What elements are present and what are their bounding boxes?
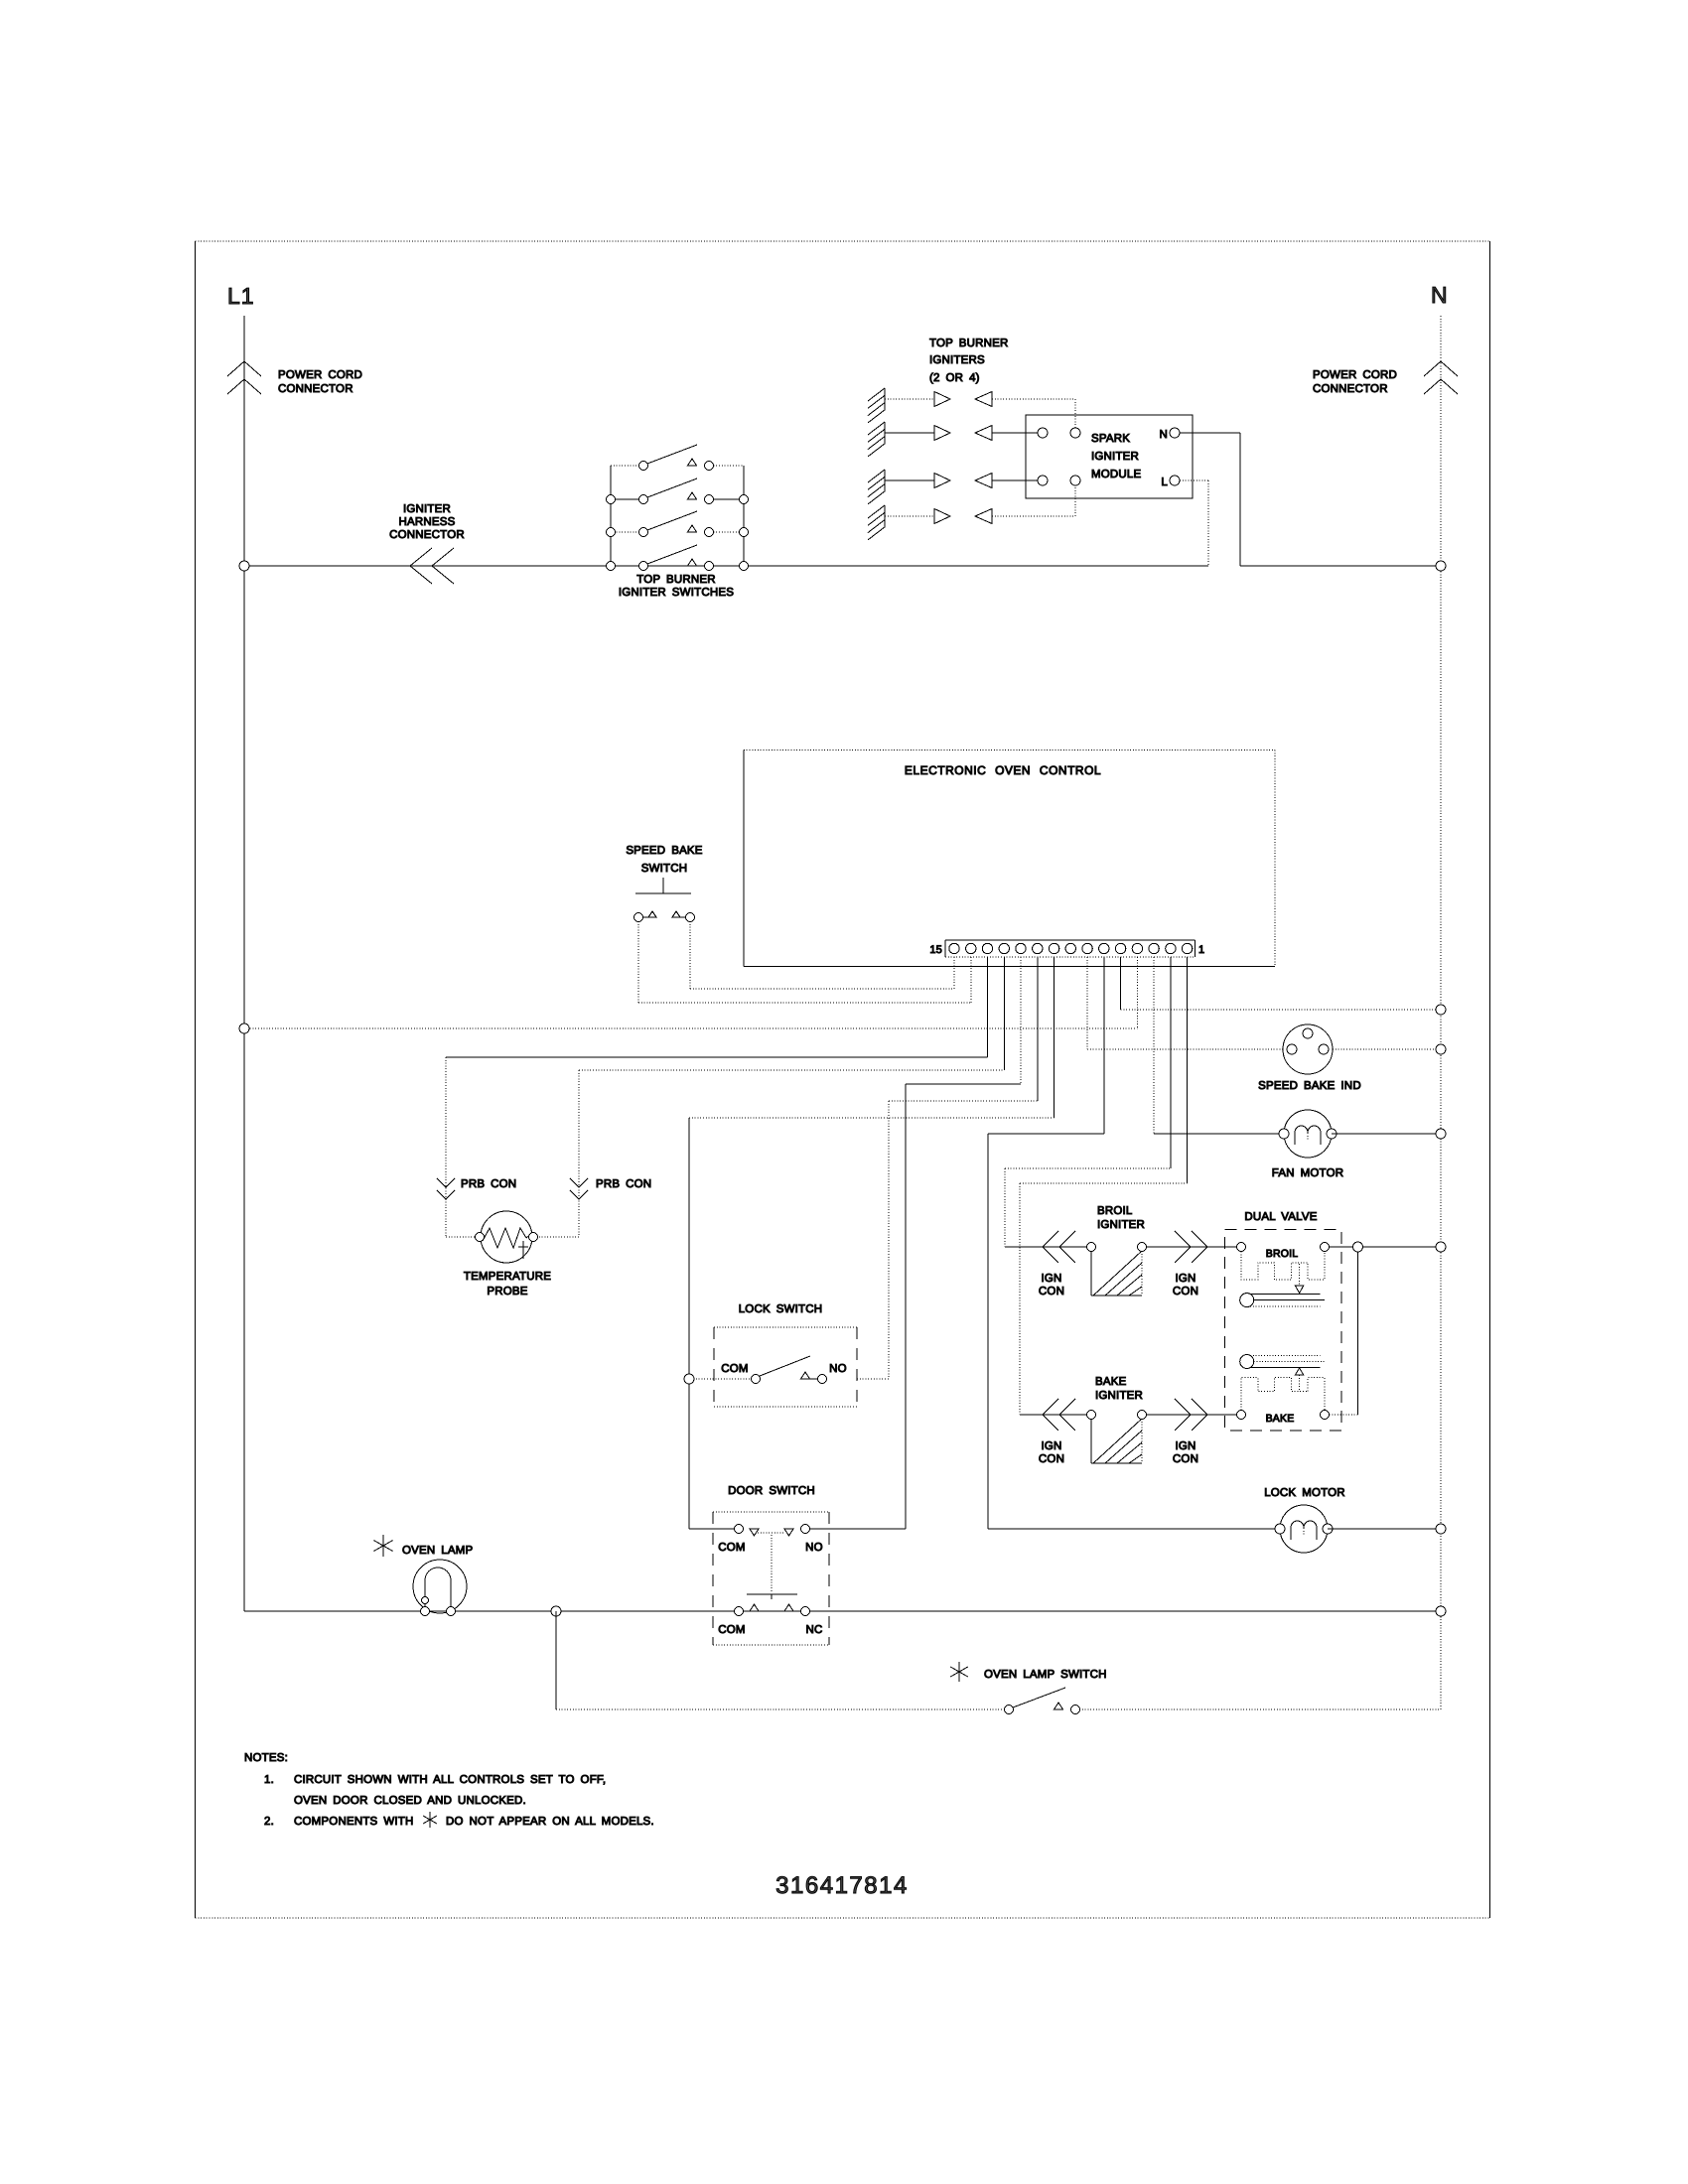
svg-text:COM: COM <box>721 1363 748 1375</box>
svg-text:SPEED BAKE IND: SPEED BAKE IND <box>1258 1080 1361 1092</box>
svg-text:OVEN LAMP SWITCH: OVEN LAMP SWITCH <box>984 1669 1107 1681</box>
svg-text:IGN: IGN <box>1175 1273 1196 1285</box>
svg-text:TOP BURNER: TOP BURNER <box>636 574 715 586</box>
svg-text:CONNECTOR: CONNECTOR <box>1313 383 1388 395</box>
svg-text:CONNECTOR: CONNECTOR <box>389 529 465 541</box>
svg-text:IGNITERS: IGNITERS <box>929 354 985 366</box>
svg-text:POWER CORD: POWER CORD <box>1313 369 1397 381</box>
svg-text:NO: NO <box>829 1363 847 1375</box>
svg-text:IGN: IGN <box>1041 1440 1061 1452</box>
svg-text:1.: 1. <box>264 1774 274 1786</box>
svg-text:SPARK: SPARK <box>1091 433 1130 445</box>
svg-text:(2 OR 4): (2 OR 4) <box>929 372 980 384</box>
svg-text:N: N <box>1159 429 1168 441</box>
svg-text:OVEN DOOR CLOSED AND UNLOCKED.: OVEN DOOR CLOSED AND UNLOCKED. <box>294 1795 526 1807</box>
svg-text:PROBE: PROBE <box>487 1286 527 1297</box>
svg-text:POWER CORD: POWER CORD <box>278 369 362 381</box>
svg-text:COMPONENTS WITH: COMPONENTS WITH <box>294 1816 414 1828</box>
svg-text:CIRCUIT SHOWN WITH ALL CONTROL: CIRCUIT SHOWN WITH ALL CONTROLS SET TO O… <box>294 1774 606 1786</box>
svg-text:NO: NO <box>805 1542 823 1554</box>
svg-text:IGNITER: IGNITER <box>1091 451 1139 463</box>
svg-text:2.: 2. <box>264 1816 274 1828</box>
svg-text:DOOR SWITCH: DOOR SWITCH <box>728 1485 815 1497</box>
svg-text:COM: COM <box>718 1624 745 1636</box>
svg-text:DUAL VALVE: DUAL VALVE <box>1244 1211 1317 1223</box>
svg-text:SPEED BAKE: SPEED BAKE <box>626 845 702 857</box>
svg-text:IGNITER: IGNITER <box>1095 1390 1143 1402</box>
svg-text:L: L <box>1161 477 1168 488</box>
svg-text:BAKE: BAKE <box>1266 1413 1295 1425</box>
svg-text:LOCK SWITCH: LOCK SWITCH <box>739 1303 823 1315</box>
svg-text:TOP BURNER: TOP BURNER <box>929 338 1008 349</box>
svg-text:NOTES:: NOTES: <box>244 1752 288 1764</box>
svg-text:L1: L1 <box>227 283 255 309</box>
svg-text:HARNESS: HARNESS <box>399 516 456 528</box>
svg-text:IGNITER: IGNITER <box>1097 1219 1145 1231</box>
svg-text:ELECTRONIC OVEN CONTROL: ELECTRONIC OVEN CONTROL <box>905 763 1101 777</box>
svg-text:OVEN LAMP: OVEN LAMP <box>402 1545 474 1557</box>
svg-text:IGNITER: IGNITER <box>403 503 451 515</box>
svg-text:LOCK MOTOR: LOCK MOTOR <box>1264 1487 1345 1499</box>
svg-text:TEMPERATURE: TEMPERATURE <box>464 1271 551 1283</box>
svg-text:DO NOT APPEAR ON ALL MODELS.: DO NOT APPEAR ON ALL MODELS. <box>446 1816 654 1828</box>
svg-text:CON: CON <box>1173 1453 1198 1465</box>
svg-text:FAN MOTOR: FAN MOTOR <box>1272 1167 1343 1179</box>
svg-text:IGN: IGN <box>1175 1440 1196 1452</box>
svg-text:MODULE: MODULE <box>1091 469 1142 480</box>
svg-text:CON: CON <box>1039 1286 1064 1297</box>
svg-text:COM: COM <box>718 1542 745 1554</box>
svg-text:BROIL: BROIL <box>1097 1205 1133 1217</box>
svg-text:CON: CON <box>1039 1453 1064 1465</box>
svg-text:CON: CON <box>1173 1286 1198 1297</box>
svg-text:PRB CON: PRB CON <box>596 1178 651 1190</box>
svg-text:NC: NC <box>805 1624 822 1636</box>
svg-text:IGNITER SWITCHES: IGNITER SWITCHES <box>619 587 734 599</box>
svg-text:316417814: 316417814 <box>775 1872 909 1899</box>
svg-text:IGN: IGN <box>1041 1273 1061 1285</box>
svg-text:15: 15 <box>929 944 942 956</box>
svg-text:CONNECTOR: CONNECTOR <box>278 383 353 395</box>
svg-text:PRB CON: PRB CON <box>461 1178 516 1190</box>
svg-text:1: 1 <box>1198 944 1204 956</box>
svg-text:BROIL: BROIL <box>1266 1248 1299 1260</box>
svg-text:SWITCH: SWITCH <box>641 863 688 875</box>
svg-text:BAKE: BAKE <box>1095 1376 1127 1388</box>
svg-text:N: N <box>1431 282 1449 308</box>
